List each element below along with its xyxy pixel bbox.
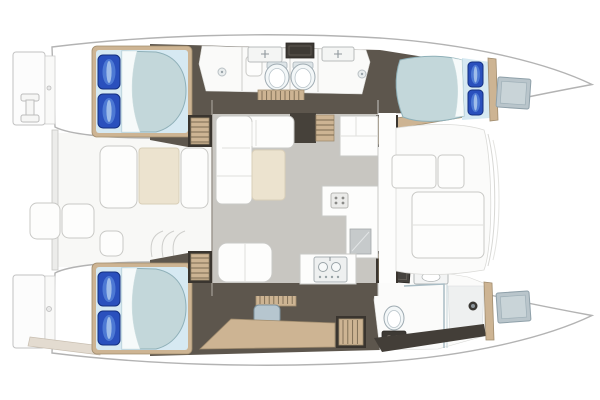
drain-dot [361,73,363,75]
catamaran-floorplan-svg [0,0,600,400]
cockpit-bench-starboard [181,148,208,208]
bow-locker-hatch [496,291,531,323]
sofa-side-section [216,116,252,204]
stern-platform-seat [62,204,94,238]
bow-bulkhead [484,282,494,340]
port-aft-cabin-bed [92,46,192,137]
companionway-steps-port-aft [188,115,212,147]
sink-basin [319,263,328,272]
starboard-swim-platform [13,275,45,348]
floorplan-canvas [0,0,600,400]
bow-bulkhead [488,58,498,121]
pillow [98,94,120,128]
salon-entry-steps [290,113,334,143]
cockpit-table [139,148,179,204]
handle-center [471,304,475,308]
salon-aft-strip [212,100,378,114]
sink-basin [332,263,341,272]
forward-seat [438,155,464,188]
port-forward-toilet [291,62,315,90]
hull-steps [336,316,366,348]
bed-duvet [396,56,464,121]
forward-seat [392,155,436,188]
pillow [98,311,120,345]
cockpit-corner-seat [100,231,123,256]
starboard-aft-cabin-bed [92,263,192,354]
pillow [98,272,120,306]
cooktop [331,193,348,208]
pillow [468,62,483,87]
side-walkway [379,113,396,283]
vanity-cabinet-dark [286,43,314,58]
starboard-deck-fitting [47,307,52,312]
bow-locker-hatch [496,77,531,109]
port-aft-toilet [265,62,289,90]
cockpit-bench-port [100,146,137,208]
forward-cockpit [379,113,499,283]
aft-cockpit [30,130,212,270]
salon-fwd-strip [212,283,378,296]
companionway-steps-starboard-aft [188,251,212,283]
drain-dot [221,71,223,73]
pillow [468,90,483,115]
aft-crossbeam [52,130,58,270]
ottoman-table [252,150,285,200]
salon [188,100,398,296]
stern-platform-seat [30,203,60,239]
pillow [98,55,120,89]
port-deck-fitting [47,86,51,90]
